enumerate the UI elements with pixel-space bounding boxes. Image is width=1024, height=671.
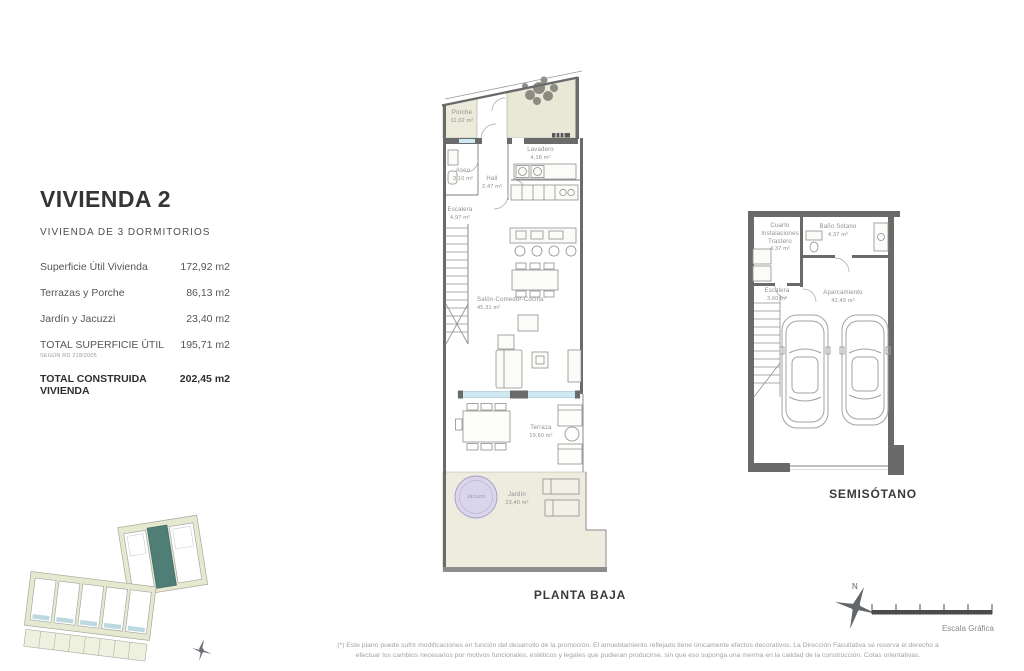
north-label: N	[852, 582, 858, 591]
scale-bar	[870, 601, 994, 624]
garage-door	[790, 466, 888, 470]
scale-label: Escala Gráfica	[868, 624, 994, 633]
plan-sheet: VIVIENDA 2 VIVIENDA DE 3 DORMITORIOS Sup…	[0, 0, 1024, 671]
table-row: TOTAL SUPERFICIE ÚTIL SEGÚN RD 218/2005 …	[40, 332, 230, 366]
room-label-hall: Hall2,47 m²	[480, 176, 504, 191]
site-plan-drawing	[15, 503, 220, 665]
row-label: Jardín y Jacuzzi	[40, 313, 115, 325]
room-label-jacuzzi: Jacuzzi	[458, 494, 494, 501]
site-lower-block	[22, 572, 156, 662]
row-value: 195,71 m2	[180, 339, 230, 351]
page-subtitle: VIVIENDA DE 3 DORMITORIOS	[40, 227, 230, 238]
planta-baja-caption: PLANTA BAJA	[470, 588, 690, 602]
room-label-lavadero: Lavadero4,18 m²	[518, 147, 563, 162]
room-label-salon: Salón-Comedor-Cocina45,31 m²	[477, 297, 549, 312]
room-label-aseo: Aseo3,10 m²	[448, 168, 478, 183]
stairs-icon	[446, 228, 468, 344]
table-row-total: TOTAL CONSTRUIDA VIVIENDA 202,45 m2	[40, 366, 230, 404]
site-north-star-icon	[192, 639, 212, 661]
stairs-icon	[754, 295, 780, 397]
disclaimer-line-1: (*) Este plano puede sufrir modificacion…	[268, 641, 1008, 651]
page-title: VIVIENDA 2	[40, 186, 230, 213]
room-label-porche: Porche11,02 m²	[447, 110, 477, 125]
disclaimer: (*) Este plano puede sufrir modificacion…	[268, 641, 1008, 661]
table-row: Jardín y Jacuzzi 23,40 m2	[40, 306, 230, 332]
site-plan-key-map	[15, 503, 220, 665]
room-label-aparcamiento: Aparcamiento42,49 m²	[816, 290, 870, 305]
room-label-escalera: Escalera4,97 m²	[442, 207, 478, 222]
room-label-escalera-sotano: Escalera3,60 m²	[757, 288, 797, 303]
row-value: 202,45 m2	[180, 373, 230, 385]
info-panel: VIVIENDA 2 VIVIENDA DE 3 DORMITORIOS Sup…	[40, 186, 230, 404]
row-label: Terrazas y Porche	[40, 287, 125, 299]
planta-baja-plan: Porche11,02 m² Aseo3,10 m² Hall2,47 m² L…	[430, 68, 615, 583]
glass-doors	[458, 391, 580, 399]
car-icon	[840, 315, 890, 425]
row-label: TOTAL SUPERFICIE ÚTIL SEGÚN RD 218/2005	[40, 339, 164, 359]
row-label: Superficie Útil Vivienda	[40, 261, 148, 273]
car-icon	[780, 315, 830, 428]
room-label-terraza: Terraza19,60 m²	[523, 425, 559, 440]
table-row: Superficie Útil Vivienda 172,92 m2	[40, 254, 230, 280]
row-value: 172,92 m2	[180, 261, 230, 273]
disclaimer-line-2: efectuar los cambios necesarios por moti…	[268, 651, 1008, 661]
semisotano-plan: Cuarto Instalaciones Trastero4,37 m² Bañ…	[740, 205, 910, 485]
areas-table: Superficie Útil Vivienda 172,92 m2 Terra…	[40, 254, 230, 404]
room-label-bano-sotano: Baño Sótano4,37 m²	[812, 224, 864, 239]
row-value: 23,40 m2	[186, 313, 230, 325]
terrace-furniture	[456, 404, 583, 465]
row-label: TOTAL CONSTRUIDA VIVIENDA	[40, 373, 180, 397]
table-row: Terrazas y Porche 86,13 m2	[40, 280, 230, 306]
scale-bar-icon	[870, 601, 994, 619]
row-footnote: SEGÚN RD 218/2005	[40, 353, 164, 359]
row-value: 86,13 m2	[186, 287, 230, 299]
semisotano-caption: SEMISÓTANO	[788, 487, 958, 501]
room-label-cuarto-instalaciones: Cuarto Instalaciones Trastero4,37 m²	[758, 223, 802, 254]
room-label-jardin: Jardín23,40 m²	[502, 492, 532, 507]
